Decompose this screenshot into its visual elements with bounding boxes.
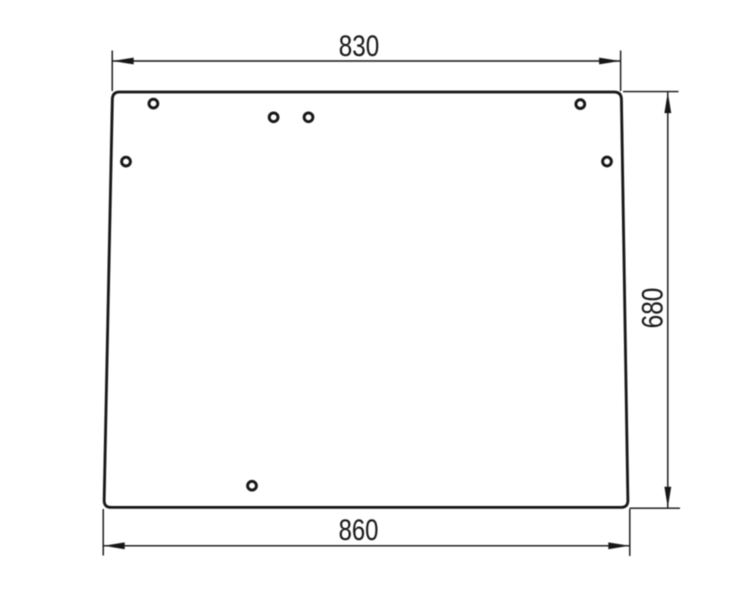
svg-text:830: 830 (339, 30, 379, 63)
svg-text:680: 680 (636, 288, 669, 329)
svg-text:860: 860 (339, 514, 379, 547)
